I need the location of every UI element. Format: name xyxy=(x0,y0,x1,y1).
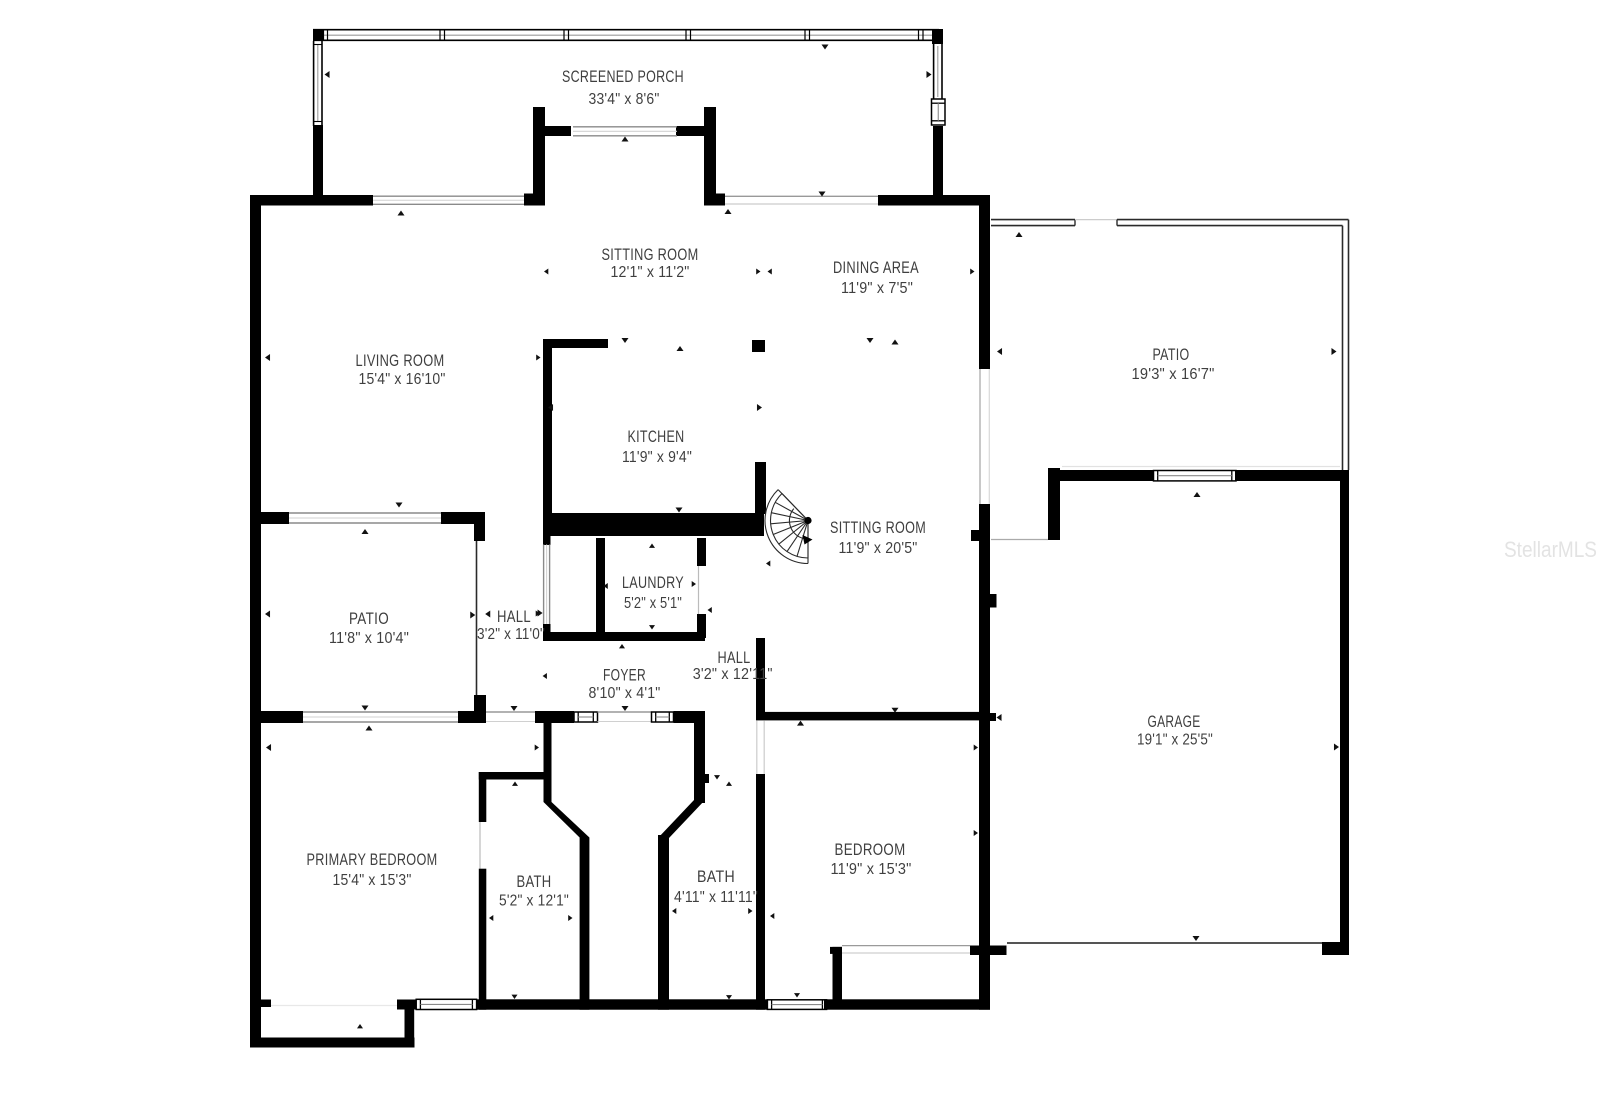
svg-text:PATIO: PATIO xyxy=(349,610,389,628)
svg-text:15'4" x 15'3": 15'4" x 15'3" xyxy=(333,872,412,889)
svg-text:LIVING ROOM: LIVING ROOM xyxy=(356,352,445,370)
svg-text:SITTING ROOM: SITTING ROOM xyxy=(830,519,926,537)
svg-text:4'11" x 11'11": 4'11" x 11'11" xyxy=(674,889,758,906)
svg-text:11'8" x 10'4": 11'8" x 10'4" xyxy=(329,630,409,647)
svg-text:11'9" x 15'3": 11'9" x 15'3" xyxy=(831,861,912,878)
svg-text:SITTING ROOM: SITTING ROOM xyxy=(602,246,699,264)
svg-text:3'2" x 11'0": 3'2" x 11'0" xyxy=(477,626,545,643)
svg-text:LAUNDRY: LAUNDRY xyxy=(622,574,684,592)
svg-text:11'9" x 9'4": 11'9" x 9'4" xyxy=(622,449,692,466)
svg-text:BEDROOM: BEDROOM xyxy=(835,841,906,859)
svg-text:3'2" x 12'11": 3'2" x 12'11" xyxy=(693,666,773,683)
svg-text:BATH: BATH xyxy=(697,868,735,886)
svg-text:5'2" x 12'1": 5'2" x 12'1" xyxy=(499,893,569,910)
svg-text:PATIO: PATIO xyxy=(1153,346,1190,364)
svg-text:19'3" x 16'7": 19'3" x 16'7" xyxy=(1132,366,1215,383)
svg-text:19'1" x 25'5": 19'1" x 25'5" xyxy=(1137,732,1213,749)
svg-text:KITCHEN: KITCHEN xyxy=(628,428,685,446)
svg-text:8'10" x 4'1": 8'10" x 4'1" xyxy=(589,685,661,702)
svg-text:5'2" x 5'1": 5'2" x 5'1" xyxy=(624,595,682,612)
svg-text:GARAGE: GARAGE xyxy=(1148,713,1201,731)
svg-text:SCREENED PORCH: SCREENED PORCH xyxy=(562,68,684,86)
svg-text:DINING AREA: DINING AREA xyxy=(833,259,919,277)
svg-text:HALL: HALL xyxy=(718,649,751,667)
svg-text:12'1" x 11'2": 12'1" x 11'2" xyxy=(611,264,690,281)
svg-text:15'4" x 16'10": 15'4" x 16'10" xyxy=(359,371,446,388)
svg-text:FOYER: FOYER xyxy=(603,667,646,685)
svg-text:BATH: BATH xyxy=(517,873,552,891)
svg-text:HALL: HALL xyxy=(497,608,531,626)
svg-text:PRIMARY BEDROOM: PRIMARY BEDROOM xyxy=(307,851,438,869)
svg-text:11'9" x 7'5": 11'9" x 7'5" xyxy=(841,280,913,297)
svg-text:11'9" x 20'5": 11'9" x 20'5" xyxy=(839,540,918,557)
svg-text:33'4" x 8'6": 33'4" x 8'6" xyxy=(589,91,660,108)
svg-text:StellarMLS: StellarMLS xyxy=(1504,537,1597,562)
